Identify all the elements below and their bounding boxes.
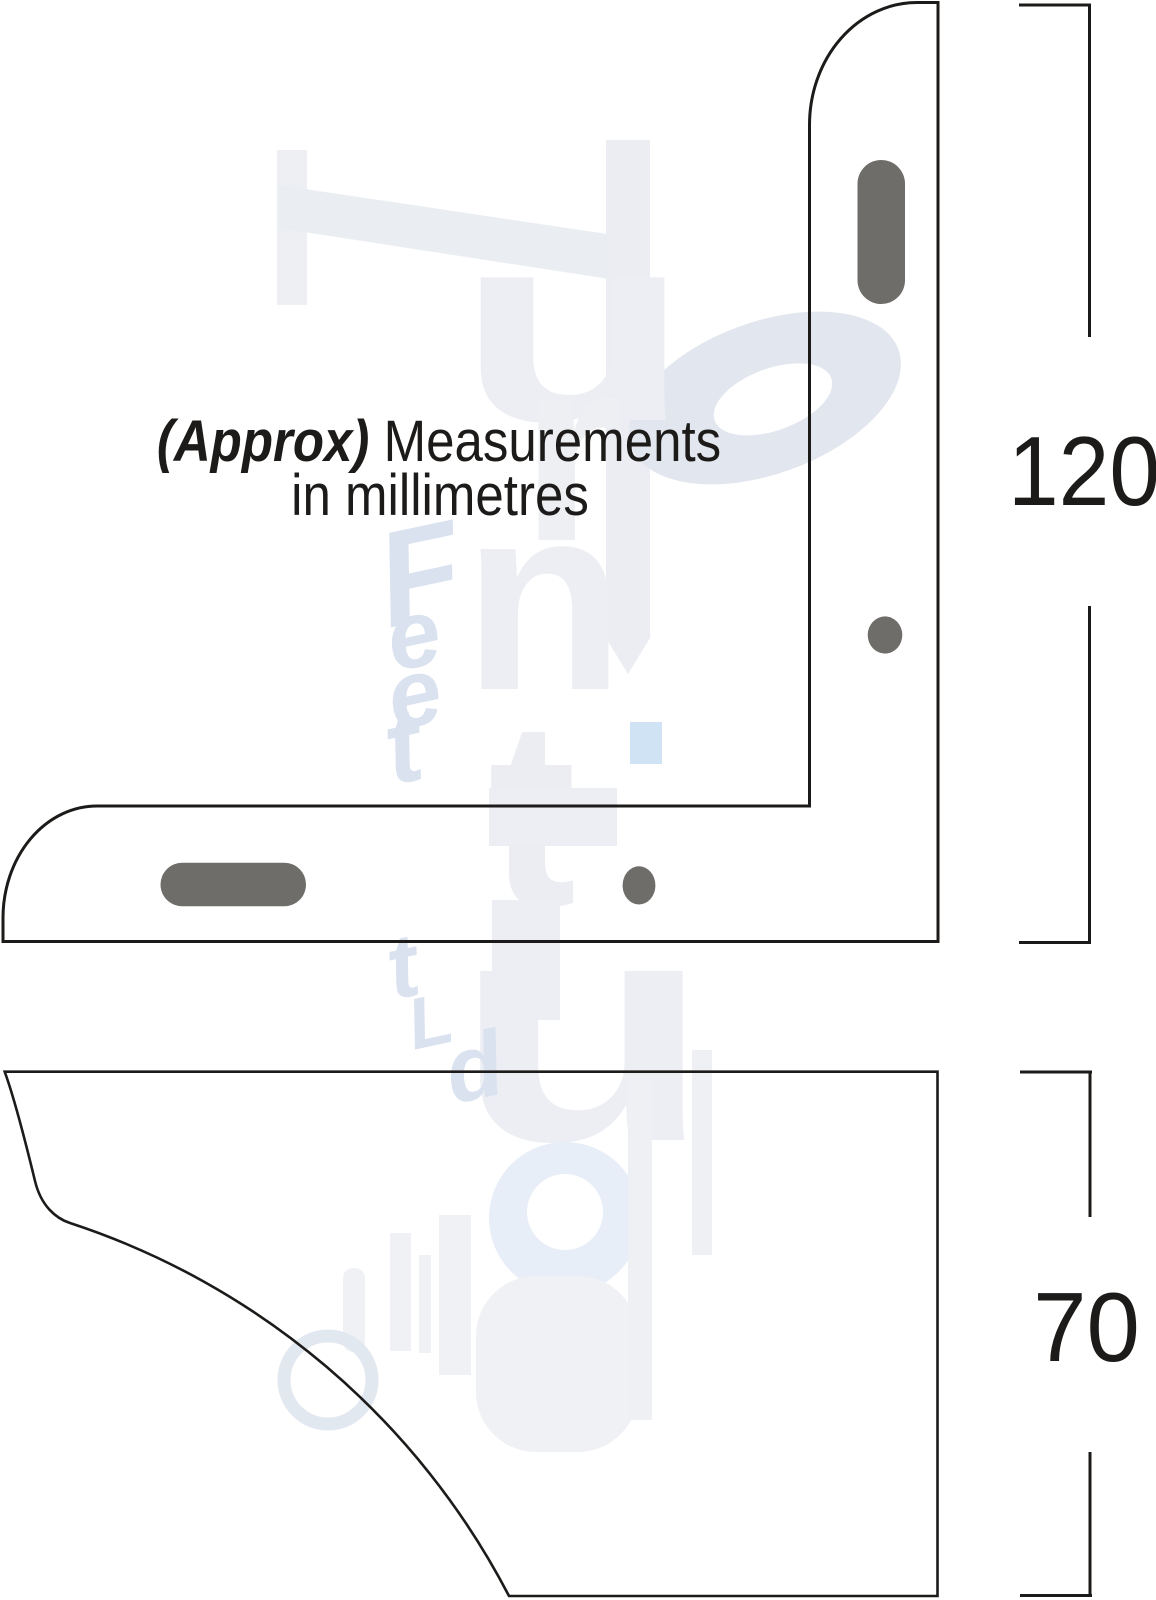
svg-text:120: 120 [1008, 417, 1156, 527]
svg-text:in millimetres: in millimetres [291, 463, 589, 528]
svg-text:70: 70 [1033, 1272, 1140, 1382]
